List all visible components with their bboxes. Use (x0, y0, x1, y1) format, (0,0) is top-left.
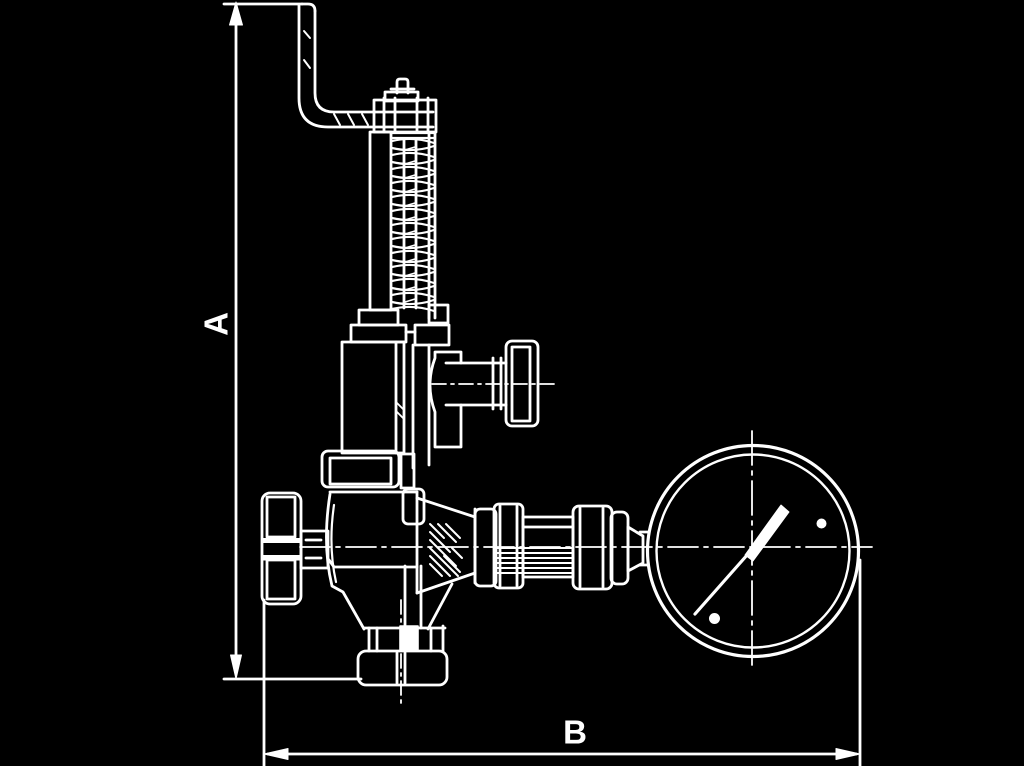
svg-text:B: B (563, 714, 587, 751)
svg-text:A: A (198, 312, 235, 336)
